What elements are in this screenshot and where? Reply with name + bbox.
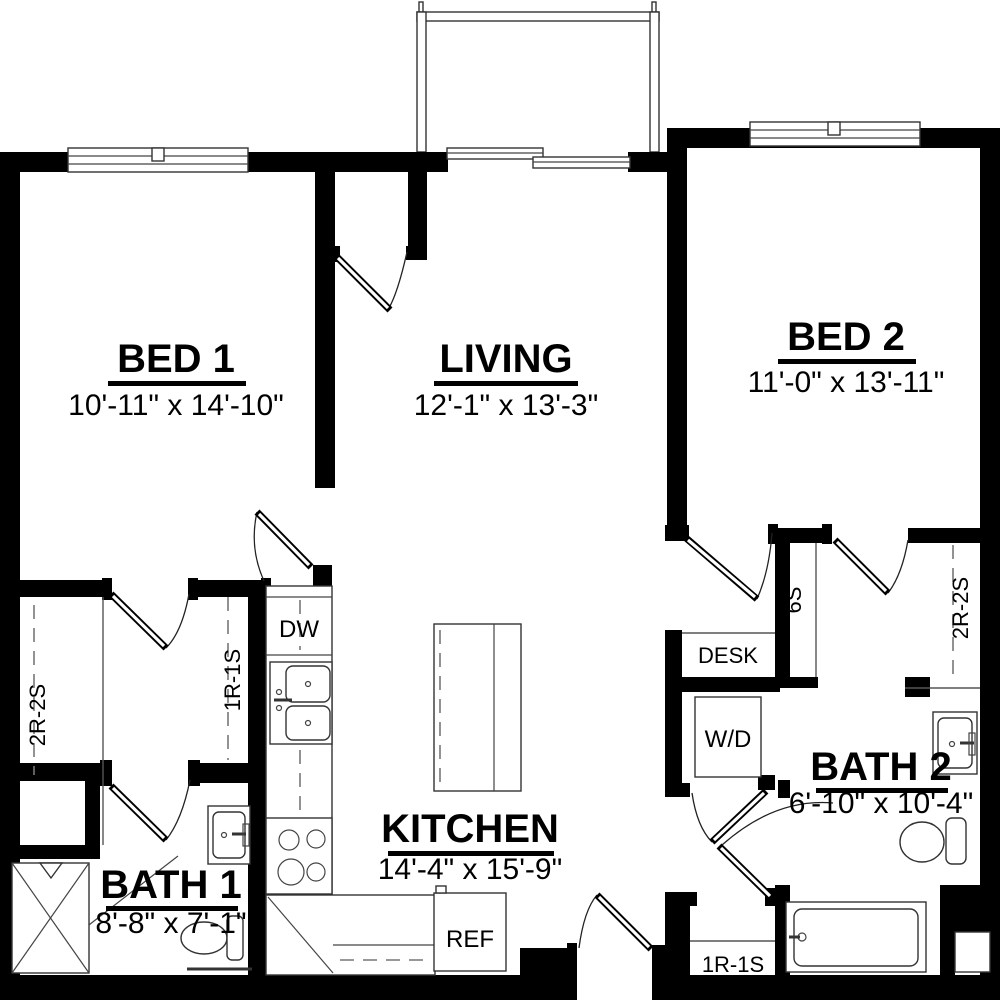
bed2-underline: [778, 359, 916, 364]
floor-plan: BED 1 10'-11" x 14'-10" LIVING 12'-1" x …: [0, 0, 1000, 1000]
bed2-dims: 11'-0" x 13'-11": [748, 366, 945, 399]
bath2-niche: [955, 932, 990, 972]
bath2-toilet: [900, 818, 966, 864]
kitchen-counter-south: [266, 895, 435, 975]
bed1-window: [68, 148, 248, 172]
living-underline: [434, 381, 578, 386]
stair-label-right-2r2s: 2R-2S: [948, 577, 973, 639]
kitchen-island: [434, 624, 521, 791]
kitchen-dims: 14'-4" x 15'-9": [378, 853, 563, 886]
bed1-underline: [108, 381, 246, 386]
bed1-dims: 10'-11" x 14'-10": [68, 389, 284, 422]
bath2-tub: [786, 902, 926, 972]
bath2-dims: 6'-10" x 10'-4": [789, 787, 974, 820]
bath1-dims: 8'-8" x 7'-1": [95, 907, 246, 940]
bed2-label: BED 2: [787, 315, 905, 359]
bath2-label: BATH 2: [810, 745, 951, 789]
bed1-label: BED 1: [117, 337, 235, 381]
living-dims: 12'-1" x 13'-3": [414, 389, 599, 422]
bath1-label: BATH 1: [100, 863, 241, 907]
dishwasher-label: DW: [279, 616, 319, 643]
stair-label-6s: 6S: [781, 587, 806, 614]
washer-dryer-label: W/D: [705, 726, 752, 753]
kitchen-label: KITCHEN: [381, 807, 559, 851]
refrigerator-label: REF: [446, 926, 494, 953]
bath1-sink: [208, 806, 250, 864]
stair-label-entry-1r1s: 1R-1S: [702, 952, 764, 977]
stair-label-left-2r2s: 2R-2S: [25, 684, 50, 746]
kitchen-sink: [270, 662, 332, 744]
bed2-window: [750, 122, 920, 146]
stair-label-hall-1r1s: 1R-1S: [220, 649, 245, 711]
desk-label: DESK: [698, 643, 758, 668]
kitchen-range: [266, 818, 332, 894]
bath1-shower: [12, 863, 89, 973]
living-label: LIVING: [439, 337, 572, 381]
